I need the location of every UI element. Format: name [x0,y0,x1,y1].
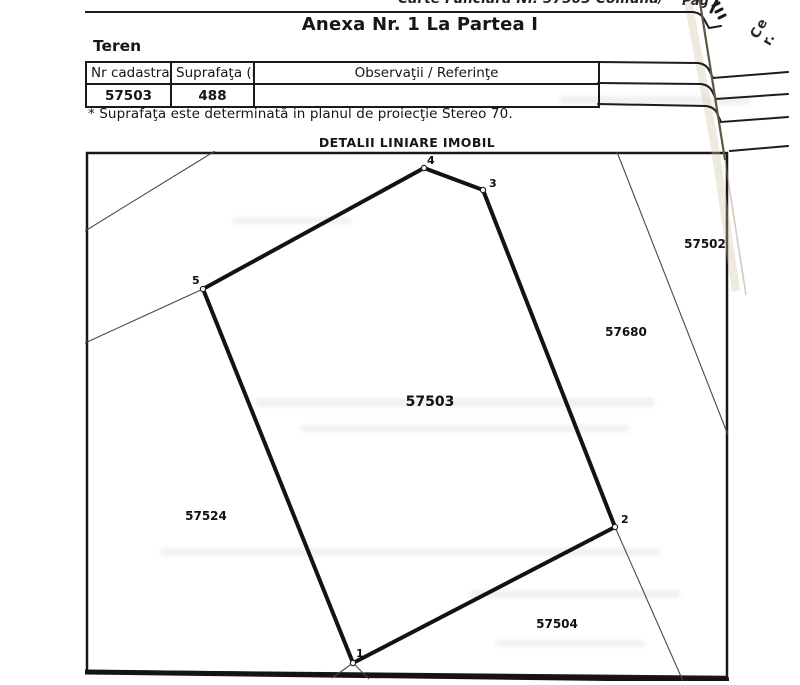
boundary-line [85,289,203,343]
bent-rule-line [598,83,788,99]
scanned-document-page: Carte Funciară Nr. 57503 Comuna/ Pag Ane… [0,0,800,685]
scan-artifact [495,640,645,647]
col-header-observatii: Observaţii / Referinţe [254,62,599,84]
boundary-line [85,151,215,231]
neighbor-parcel-number: 57524 [185,509,227,523]
neighbor-parcel-number: 57504 [536,617,578,631]
vertex-marker [200,286,205,291]
bent-rule-line [598,104,788,122]
main-parcel-outline [203,168,615,663]
vertex-number: 5 [192,274,200,287]
vertex-number: 2 [621,513,629,526]
vertex-marker [350,660,355,665]
col-header-suprafata: Suprafaţa (mp)* [171,62,254,84]
table-header-row: Nr cadastral Suprafaţa (mp)* Observaţii … [86,62,599,84]
col-header-nr-cadastral: Nr cadastral [86,62,171,84]
table-row: 57503 488 [86,84,599,107]
cell-observatii [254,84,599,107]
bent-rule-line [598,62,788,78]
vertex-marker [480,187,485,192]
vertex-number: 1 [356,647,364,660]
vertex-marker [421,165,426,170]
cadastral-table: Nr cadastral Suprafaţa (mp)* Observaţii … [85,61,600,108]
cell-nr-cadastral: 57503 [86,84,171,107]
scan-artifact [160,548,660,556]
paper-curl-shading [684,0,740,292]
scan-artifact [300,425,630,432]
section-label-teren: Teren [93,37,141,55]
vertex-number: 4 [427,154,435,167]
cell-suprafata: 488 [171,84,254,107]
stray-mark [719,15,725,18]
stray-mark [716,9,722,12]
scan-artifact [470,590,680,598]
paper-edge-artifacts [560,0,800,340]
bent-rule-line [730,146,788,151]
scan-artifact [255,398,655,407]
scan-artifact [232,217,352,224]
vertex-marker [612,524,617,529]
vertex-number: 3 [489,177,497,190]
stereo70-footnote: * Suprafaţa este determinată in planul d… [88,106,513,122]
